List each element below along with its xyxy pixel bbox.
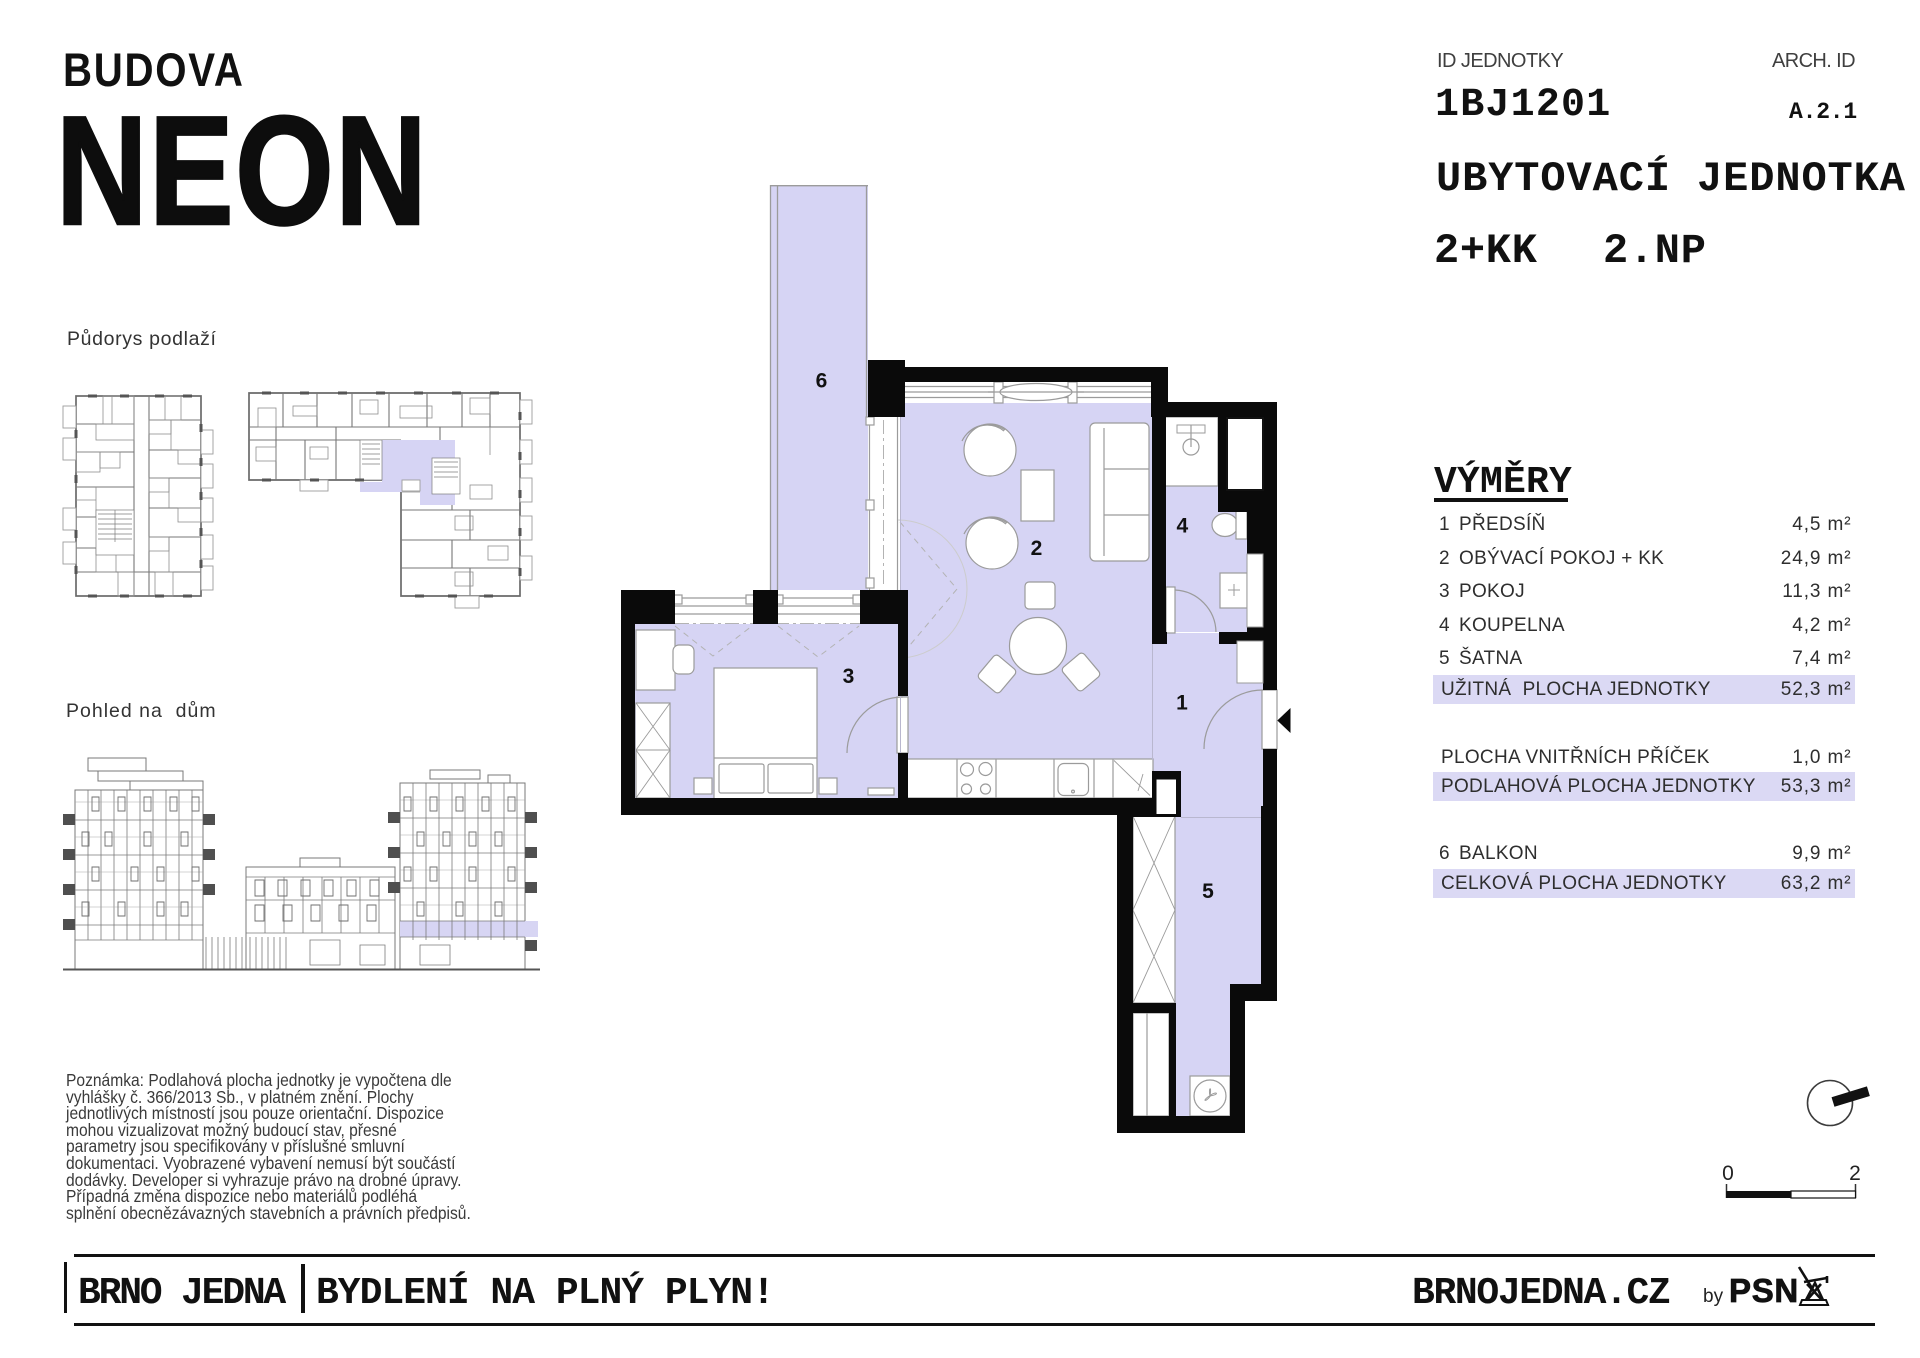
- svg-text:6: 6: [816, 370, 828, 393]
- svg-text:2: 2: [1031, 537, 1043, 560]
- svg-text:5: 5: [1202, 880, 1214, 903]
- svg-text:0: 0: [1722, 1162, 1734, 1185]
- svg-text:3: 3: [843, 665, 855, 688]
- svg-text:2: 2: [1849, 1162, 1861, 1185]
- svg-text:1: 1: [1176, 692, 1188, 715]
- svg-text:4: 4: [1177, 515, 1189, 538]
